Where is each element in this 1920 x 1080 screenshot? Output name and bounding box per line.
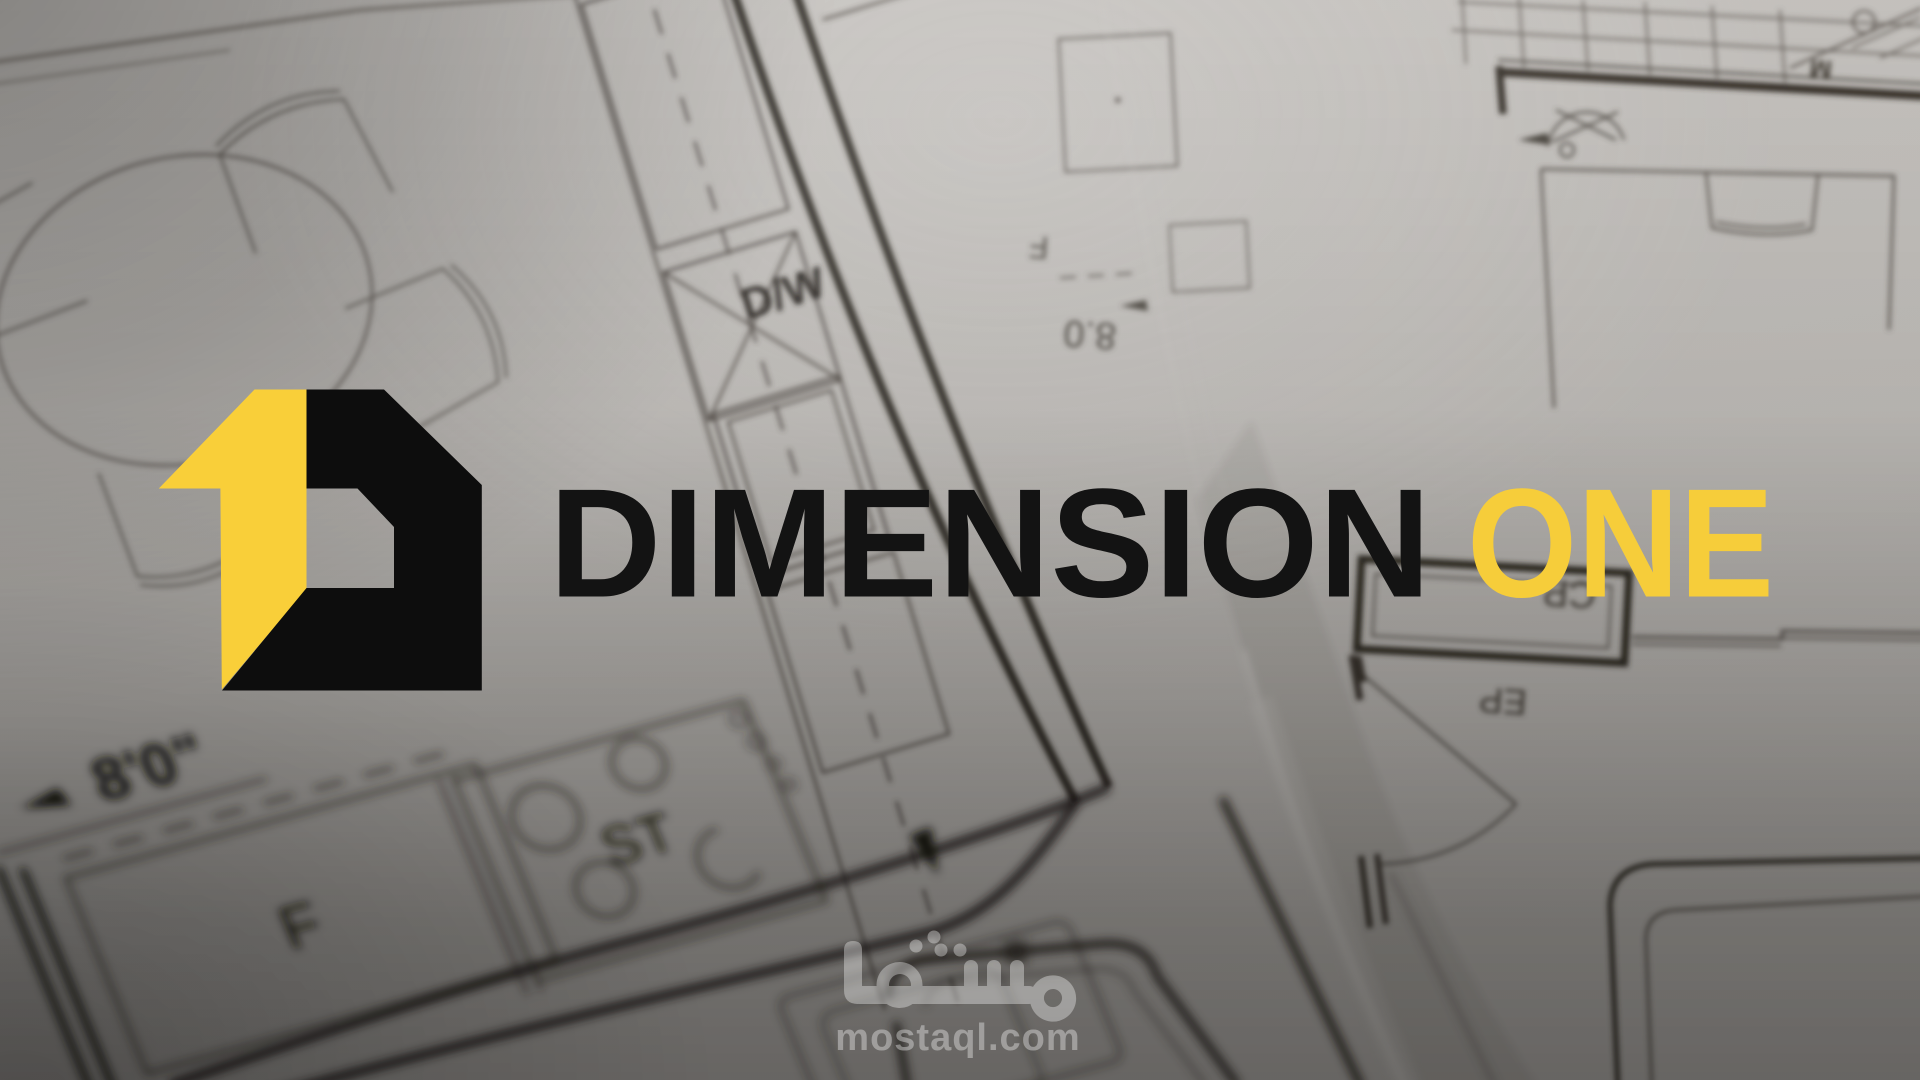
svg-text:DIMENSION: DIMENSION [549, 457, 1431, 630]
svg-text:ONE: ONE [1467, 457, 1774, 630]
svg-text:mostaql.com: mostaql.com [835, 1017, 1080, 1059]
